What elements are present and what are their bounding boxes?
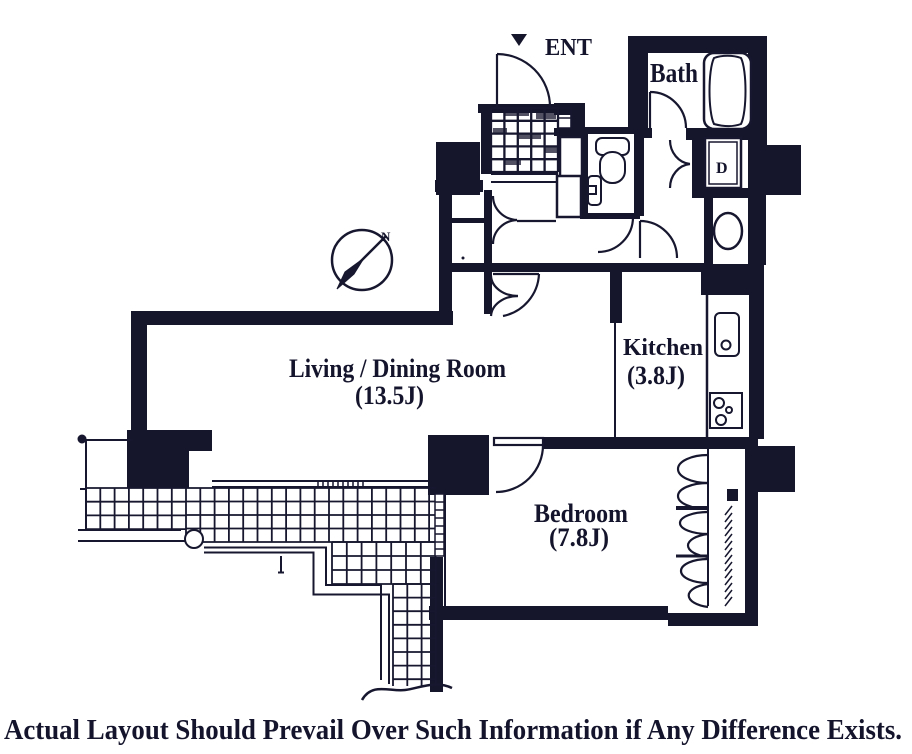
- svg-text:Actual Layout Should Prevail O: Actual Layout Should Prevail Over Such I…: [4, 714, 902, 746]
- svg-text:Kitchen: Kitchen: [623, 334, 703, 361]
- svg-text:(3.8J): (3.8J): [627, 361, 685, 390]
- svg-text:(7.8J): (7.8J): [549, 523, 609, 552]
- svg-text:Living / Dining Room: Living / Dining Room: [289, 353, 506, 383]
- svg-text:ENT: ENT: [545, 34, 592, 61]
- svg-text:D: D: [716, 160, 728, 177]
- svg-text:N: N: [381, 229, 391, 244]
- svg-text:(13.5J): (13.5J): [355, 380, 424, 410]
- svg-text:Bath: Bath: [650, 58, 698, 88]
